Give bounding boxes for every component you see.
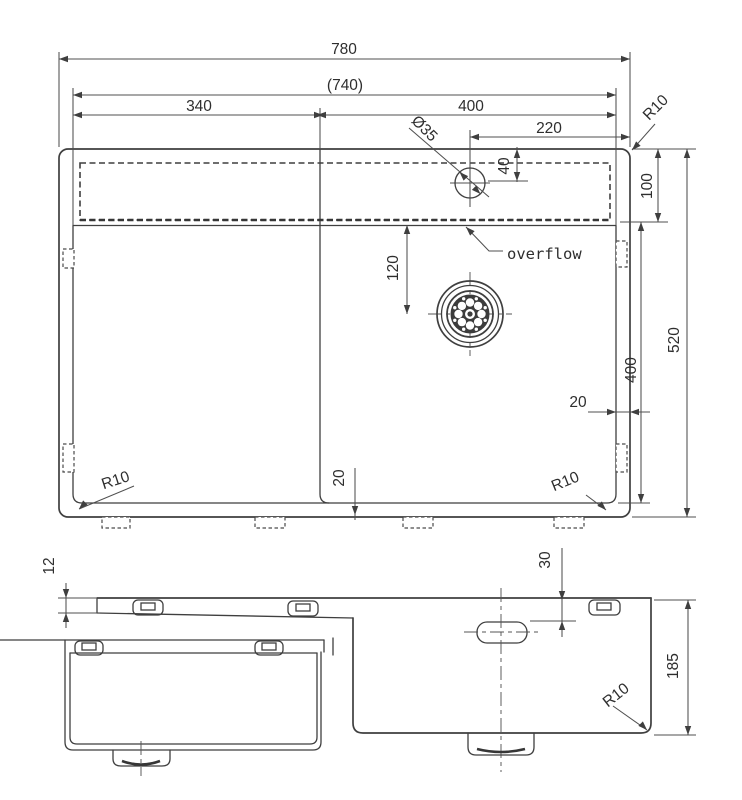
arrow	[63, 613, 69, 622]
radius-text-r10-front: R10	[600, 680, 633, 711]
drawing-canvas: 780 (740) 340 400 220	[0, 0, 742, 800]
arrow	[621, 56, 630, 62]
ledge-hidden-edge	[80, 163, 610, 220]
strainer-center-pin	[467, 311, 472, 316]
arrow	[470, 134, 479, 140]
strainer-hole	[477, 310, 485, 318]
dim-label-20-bottom: 20	[331, 469, 348, 487]
arrow	[63, 589, 69, 598]
arrow	[607, 92, 616, 98]
strainer-dot	[475, 328, 478, 331]
dim-overflow-slot-drop: 30	[530, 548, 576, 637]
arrow	[404, 225, 410, 234]
front-view: 12 30 185 R10	[0, 548, 696, 776]
arrow	[655, 149, 661, 158]
dim-ledge-depth: 100	[620, 149, 696, 222]
clip	[288, 601, 318, 616]
dim-label-120: 120	[385, 255, 402, 281]
dim-bowl-depth-front: 185	[654, 600, 696, 735]
clip-left-bottom	[63, 444, 74, 472]
arrow	[638, 222, 644, 231]
radius-label-bottom-right: R10	[549, 468, 608, 512]
clip-bottom-3	[403, 517, 433, 528]
radius-text-r10-tr: R10	[640, 91, 672, 123]
overflow-diameter-label: Ø35	[408, 112, 489, 197]
top-view-outline	[59, 149, 630, 517]
clip-bottom-2	[255, 517, 285, 528]
arrow	[73, 112, 82, 118]
tray-outer-wall	[65, 640, 321, 750]
sink-outer-rim	[59, 149, 630, 517]
dim-overflow-offset: 220	[470, 120, 630, 140]
clip-left-top	[63, 249, 74, 268]
sink-technical-drawing: 780 (740) 340 400 220	[0, 0, 742, 800]
dim-label-400-top: 400	[458, 98, 484, 115]
arrow	[685, 726, 691, 735]
dim-label-100: 100	[639, 173, 656, 199]
arrow	[621, 134, 630, 140]
clip	[133, 600, 163, 615]
dim-label-185: 185	[665, 653, 682, 679]
arrow	[607, 409, 616, 415]
radius-label-front: R10	[600, 680, 649, 732]
strainer-hole	[474, 318, 482, 326]
drain	[428, 272, 512, 356]
overflow-text: overflow	[507, 245, 582, 263]
bowl-inner-wall	[73, 226, 616, 503]
strainer-dot	[453, 306, 456, 309]
strainer-dot	[453, 319, 456, 322]
clip-right-top	[616, 241, 627, 267]
radius-label-top-right: R10	[630, 91, 672, 152]
dim-label-220: 220	[536, 120, 562, 137]
arrow	[404, 305, 410, 314]
strainer-dot	[475, 297, 478, 300]
strainer-hole	[458, 302, 466, 310]
arrow	[73, 92, 82, 98]
strainer-dot	[462, 328, 465, 331]
clip-right-bottom	[616, 444, 627, 472]
dim-label-340: 340	[186, 98, 212, 115]
strainer-dot	[484, 319, 487, 322]
strainer-hole	[466, 298, 474, 306]
radius-text-r10-br: R10	[549, 468, 582, 495]
front-view-outline	[0, 588, 651, 776]
arrow	[514, 172, 520, 181]
drain-strainer	[451, 295, 490, 334]
dim-label-40: 40	[496, 157, 513, 175]
bowl-divider	[320, 150, 329, 503]
dim-label-30: 30	[537, 551, 554, 569]
strainer-dot	[462, 297, 465, 300]
tray-inner-wall	[70, 653, 317, 744]
arrow	[638, 494, 644, 503]
dim-drain-offset: 120	[385, 225, 410, 314]
arrow	[317, 112, 326, 118]
strainer-hole	[466, 321, 474, 329]
dim-label-400-right: 400	[623, 357, 640, 383]
dim-right-edge-gap: 20	[569, 394, 650, 415]
dim-overflow-drop: 40	[488, 147, 528, 182]
arrow	[630, 141, 641, 152]
arrow	[684, 508, 690, 517]
right-bowl-section	[353, 598, 651, 733]
dim-label-12: 12	[41, 557, 58, 574]
dim-label-740: (740)	[327, 77, 363, 94]
arrow	[514, 149, 520, 158]
dim-overall-depth: 520	[632, 149, 696, 517]
arrow	[607, 112, 616, 118]
arrow	[59, 56, 68, 62]
strainer-hole	[458, 318, 466, 326]
arrow	[684, 149, 690, 158]
clip-bottom-4	[554, 517, 584, 528]
radius-text-r10-bl: R10	[99, 468, 132, 493]
radius-label-bottom-left: R10	[77, 468, 134, 511]
front-clips	[75, 600, 620, 655]
strainer-dot	[484, 306, 487, 309]
strainer-hole	[474, 302, 482, 310]
overflow-slot	[477, 622, 527, 643]
top-view: 780 (740) 340 400 220	[59, 41, 696, 528]
arrow	[352, 506, 358, 515]
clip-bottom-1	[102, 517, 130, 528]
dim-inner-width: (740)	[73, 77, 616, 225]
arrow	[630, 409, 639, 415]
dim-bowl-widths: 340 400	[73, 98, 616, 149]
dim-label-520: 520	[666, 327, 683, 353]
dim-rim-step: 12	[41, 557, 100, 628]
dim-label-780: 780	[331, 41, 357, 58]
dim-bottom-edge-gap: 20	[331, 468, 358, 520]
strainer-hole	[454, 310, 462, 318]
dim-label-20-right: 20	[569, 394, 587, 411]
clip	[589, 600, 620, 615]
dim-label-d35: Ø35	[408, 112, 441, 145]
overflow-annotation: overflow	[464, 225, 583, 263]
arrow	[559, 621, 565, 630]
arrow	[685, 600, 691, 609]
arrow	[655, 213, 661, 222]
